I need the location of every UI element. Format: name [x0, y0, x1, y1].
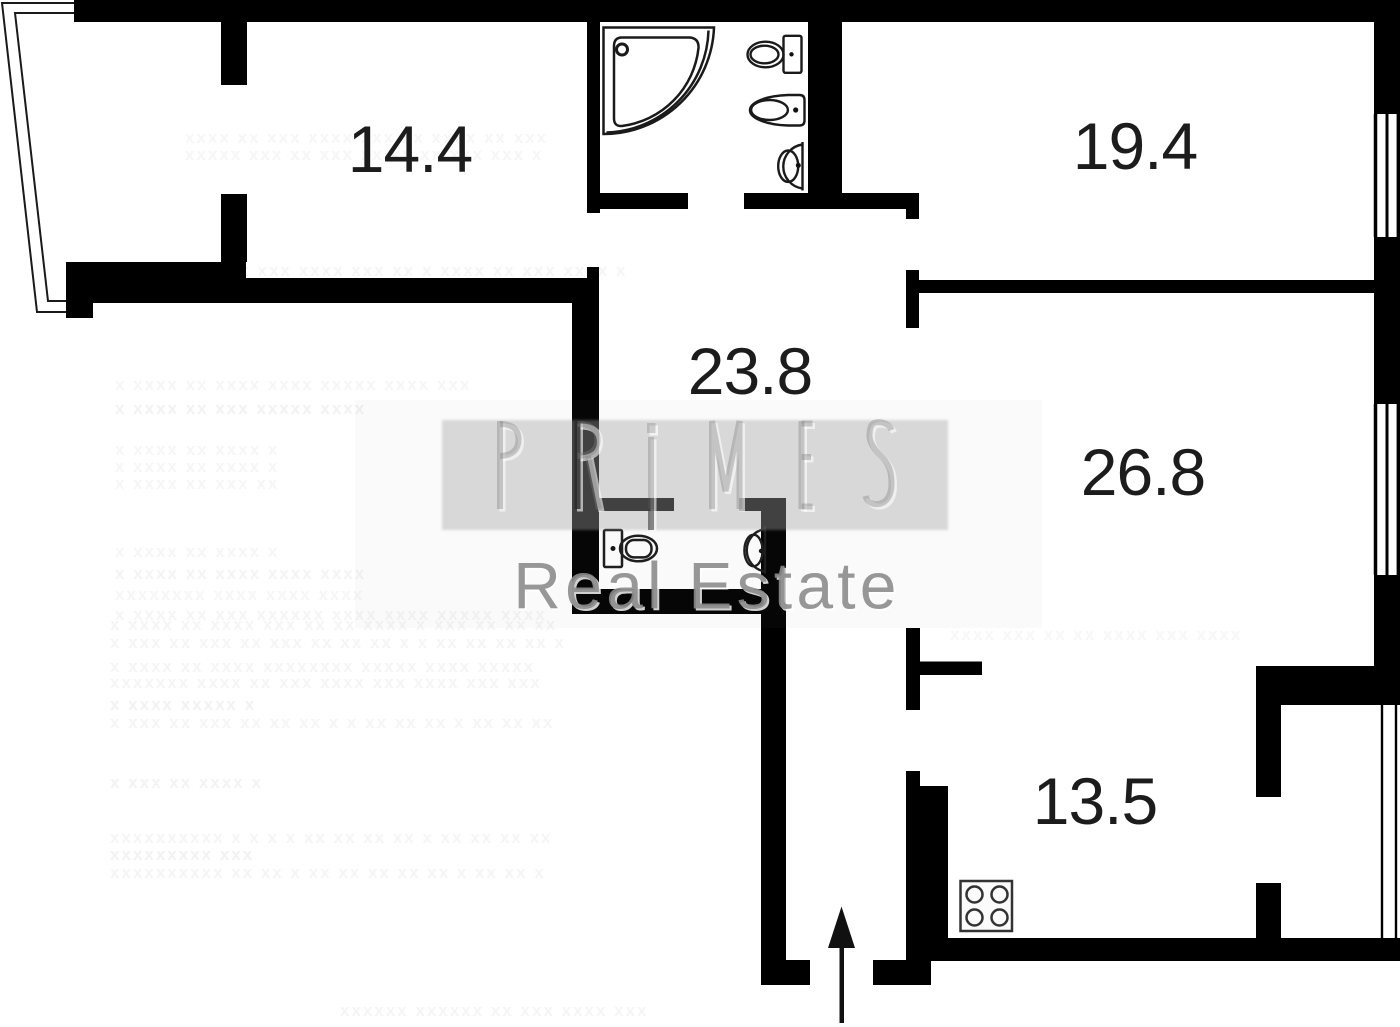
- svg-text:x xxxx xx xxxx xxxx xxxxx xxxx: x xxxx xx xxxx xxxx xxxxx xxxx xxx: [115, 375, 471, 394]
- svg-text:23.8: 23.8: [688, 334, 812, 408]
- svg-text:x xxxx xx xxxx xxxx xxxx: x xxxx xx xxxx xxxx xxxx: [115, 564, 366, 583]
- svg-text:x xxx xx xxx xx xxx xx xx xx x: x xxx xx xxx xx xxx xx xx xx x x xx xx x…: [110, 633, 566, 652]
- svg-text:x xxxx xx xxx xxxxx xxxx: x xxxx xx xxx xxxxx xxxx: [115, 399, 366, 418]
- svg-text:xxxxxx xxxxxx xx xxx xxxx xxx: xxxxxx xxxxxx xx xxx xxxx xxx: [340, 1001, 649, 1020]
- svg-text:19.4: 19.4: [1073, 109, 1197, 183]
- svg-text:x xxx xx xxxx x: x xxx xx xxxx x: [110, 773, 263, 792]
- svg-text:x xxxx xxxxx x: x xxxx xxxxx x: [110, 695, 256, 714]
- svg-text:xxxxxxx xxxx xx xxx xxxx xxx x: xxxxxxx xxxx xx xxx xxxx xxx xxxx xxx xx…: [110, 673, 542, 692]
- svg-text:xx xxx xxxx xxx xx x xxxx xx x: xx xxx xxxx xxx xx x xxxx xx xxx xxxx x: [228, 261, 627, 280]
- svg-text:xxxxxxxx xxxx xxxx xxxx: xxxxxxxx xxxx xxxx xxxx: [115, 585, 364, 604]
- svg-text:xxxxxxxxxx xx xx x xx xx xx xx: xxxxxxxxxx xx xx x xx xx xx xx xx x xx x…: [110, 863, 546, 882]
- svg-text:x xxxx xx xxxx x: x xxxx xx xxxx x: [115, 542, 279, 561]
- svg-text:13.5: 13.5: [1033, 764, 1157, 838]
- svg-text:x xxx xx xxx xx xx xx x x xx x: x xxx xx xxx xx xx xx x x xx xx xx x xx …: [110, 713, 555, 732]
- svg-text:Real Estate: Real Estate: [513, 549, 900, 623]
- svg-text:14.4: 14.4: [348, 112, 472, 186]
- svg-text:xxxxxxxxx xxx: xxxxxxxxx xxx: [110, 845, 254, 864]
- svg-text:26.8: 26.8: [1081, 435, 1205, 509]
- svg-text:x xxxx xx xxx xx: x xxxx xx xxx xx: [115, 474, 279, 493]
